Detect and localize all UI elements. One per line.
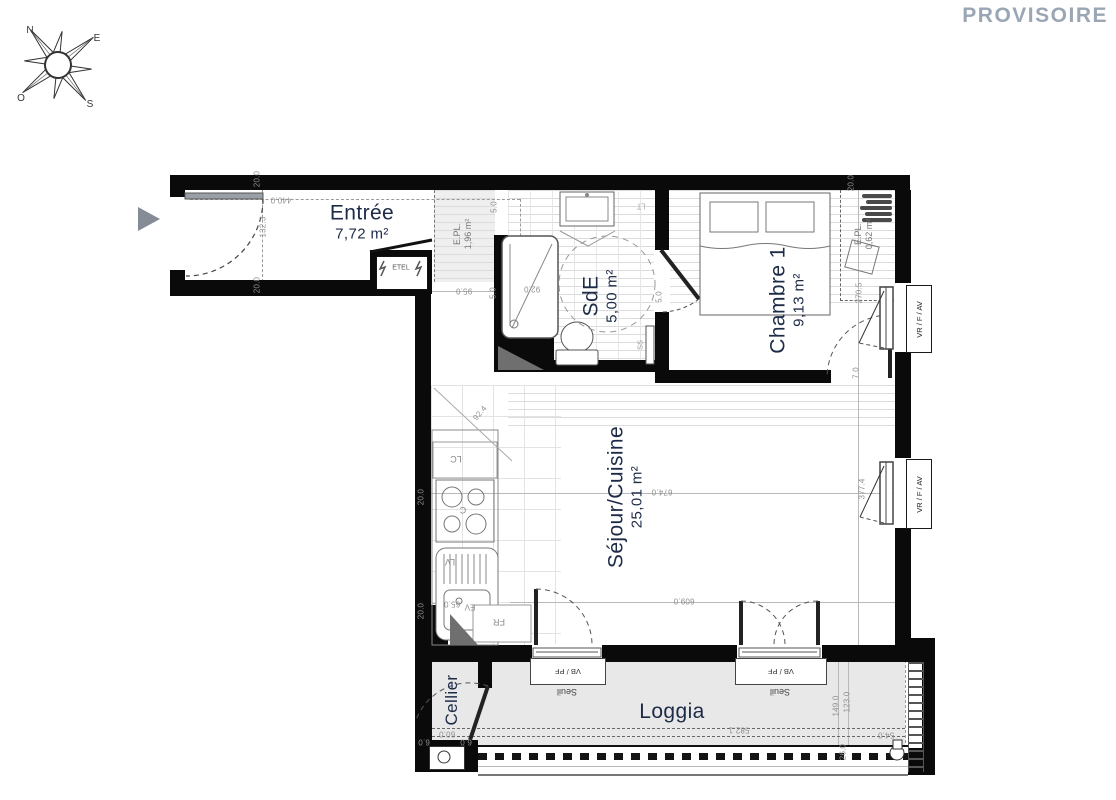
seuil-label: Seuil xyxy=(770,687,790,697)
cooktop-burner xyxy=(466,514,486,534)
seuil-label: Seuil xyxy=(557,687,577,697)
pf1-label-box: VB / PF xyxy=(530,658,606,685)
dimension-label: 132.3 xyxy=(259,216,268,237)
closet-area: 1,96 m² xyxy=(463,219,474,250)
towel-radiator xyxy=(646,326,654,364)
dimension-label: 149.0 xyxy=(832,695,841,716)
dimension-label: 20.0 xyxy=(253,277,262,293)
sde-door-leaf xyxy=(661,250,699,299)
room-area: 7,72 m² xyxy=(335,225,389,242)
dimension-label: 609.0 xyxy=(673,597,694,606)
toilet-tank xyxy=(556,350,598,365)
dimension-label: 7.0 xyxy=(852,367,861,379)
dimension-label: 20.0 xyxy=(253,171,262,187)
dimension-label: 270.5 xyxy=(855,282,864,303)
dimension-label: 54.0 xyxy=(878,731,894,740)
dim-diagonal xyxy=(434,388,512,461)
dishwasher-label: LV xyxy=(445,557,455,567)
window1-label: VR / F / AV xyxy=(915,301,924,338)
cellier-door-leaf xyxy=(470,686,488,740)
dimension-label: 377.4 xyxy=(858,478,867,499)
entry-door-leaf xyxy=(185,193,263,199)
room-area: 9,13 m² xyxy=(790,273,807,327)
washer-lc xyxy=(433,442,497,478)
dimension-label: 20.0 xyxy=(417,603,426,619)
dimension-label: 20.0 xyxy=(847,175,856,191)
toilet-bowl xyxy=(561,322,593,352)
pf2-arc-left xyxy=(741,601,785,645)
cooktop-burner xyxy=(442,487,462,507)
downspout-top xyxy=(893,740,902,749)
pf1-label: VB / PF xyxy=(555,667,581,676)
closet-name: E.PL. xyxy=(853,223,864,245)
dimension-label: 20.0 xyxy=(417,489,426,505)
room-area: 5,00 m² xyxy=(603,269,620,323)
dimension-label: 60.0 xyxy=(439,730,455,739)
sde-door-arc xyxy=(661,299,699,312)
room-label-chambre: Chambre 1 9,13 m² xyxy=(766,246,807,353)
closet-name: E.PL. xyxy=(452,223,463,245)
entry-door-arc xyxy=(186,199,263,276)
dimension-label: 674.0 xyxy=(651,488,672,497)
floor-plan: PROVISOIRE N E S O xyxy=(0,0,1116,800)
dimension-label: 5.0 xyxy=(490,201,499,213)
etel-bolt-icon xyxy=(380,261,385,276)
room-name: SdE xyxy=(579,276,603,317)
window2-label: VR / F / AV xyxy=(915,476,924,513)
etel-label: ETEL xyxy=(392,265,410,272)
room-name: Séjour/Cuisine xyxy=(604,426,628,568)
dimension-label: 5.0 xyxy=(489,287,498,299)
dimension-label: 92.0 xyxy=(524,285,540,294)
room-name: Entrée xyxy=(330,201,394,225)
window2-label-box: VR / F / AV xyxy=(906,459,932,529)
fridge-label: FR xyxy=(493,617,505,627)
bed xyxy=(700,193,830,315)
washer-label: LC xyxy=(450,454,462,464)
closet-label-sde: E.PL. 1,96 m² xyxy=(452,219,475,250)
room-label-cellier: Cellier xyxy=(442,675,462,726)
cooktop-burner xyxy=(468,489,484,505)
dimension-label: 26.0 xyxy=(839,744,848,760)
room-name: Loggia xyxy=(639,700,704,724)
dimension-label: 123.0 xyxy=(843,691,852,712)
dimension-label: 582.1 xyxy=(728,726,749,735)
pf2-label-box: VB / PF xyxy=(735,658,827,685)
dimension-label: 440.0 xyxy=(270,196,291,205)
towel-radiator-label: SS xyxy=(636,340,645,350)
pf2-arc-right xyxy=(774,601,818,645)
room-label-sejour: Séjour/Cuisine 25,01 m² xyxy=(604,426,645,568)
lt-label: LT xyxy=(637,202,646,211)
closet-area: 0,62 m² xyxy=(864,219,875,250)
sink-label: EV xyxy=(465,603,476,612)
room-name: Chambre 1 xyxy=(766,246,790,353)
etel-bolt-icon xyxy=(416,261,421,276)
dimension-label: 6.0 xyxy=(418,738,430,747)
room-area: 25,01 m² xyxy=(628,466,645,528)
dimension-label: 5.0 xyxy=(655,291,664,303)
washbasin-front xyxy=(560,231,615,246)
cooktop-burner xyxy=(444,516,460,532)
closet-label-chambre: E.PL. 0,62 m² xyxy=(853,219,876,250)
room-label-loggia: Loggia xyxy=(639,700,704,724)
dimension-label: 65.0 xyxy=(444,600,460,609)
pf1-arc xyxy=(536,589,592,645)
cooktop-label: C xyxy=(460,505,467,515)
dimension-label: 95.0 xyxy=(456,287,472,296)
room-label-sde: SdE 5,00 m² xyxy=(579,269,620,323)
dimension-label: 6.0 xyxy=(460,738,472,747)
washbasin-tap xyxy=(585,193,589,197)
sde-duct-triangle xyxy=(498,346,544,370)
pf2-label: VB / PF xyxy=(768,667,794,676)
downspout xyxy=(438,751,450,763)
room-label-entree: Entrée 7,72 m² xyxy=(330,201,394,242)
window1-label-box: VR / F / AV xyxy=(906,285,932,353)
room-name: Cellier xyxy=(442,675,462,726)
